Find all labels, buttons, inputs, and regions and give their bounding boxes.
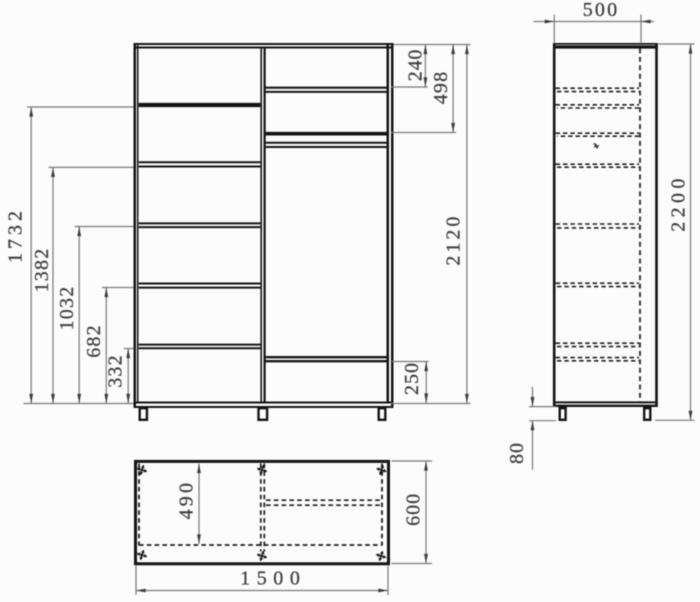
svg-text:80: 80	[506, 442, 528, 464]
svg-text:500: 500	[583, 0, 620, 21]
svg-text:600: 600	[402, 493, 424, 526]
svg-text:250: 250	[401, 362, 423, 395]
svg-text:332: 332	[105, 354, 127, 388]
svg-text:2200: 2200	[668, 174, 690, 232]
svg-text:490: 490	[176, 480, 198, 520]
svg-text:1382: 1382	[31, 248, 53, 293]
svg-text:682: 682	[83, 324, 105, 358]
svg-text:1732: 1732	[5, 207, 27, 263]
svg-text:1500: 1500	[240, 568, 306, 590]
svg-text:498: 498	[430, 71, 452, 105]
svg-text:2120: 2120	[443, 214, 465, 266]
svg-text:240: 240	[405, 49, 427, 81]
svg-text:1032: 1032	[56, 286, 78, 331]
